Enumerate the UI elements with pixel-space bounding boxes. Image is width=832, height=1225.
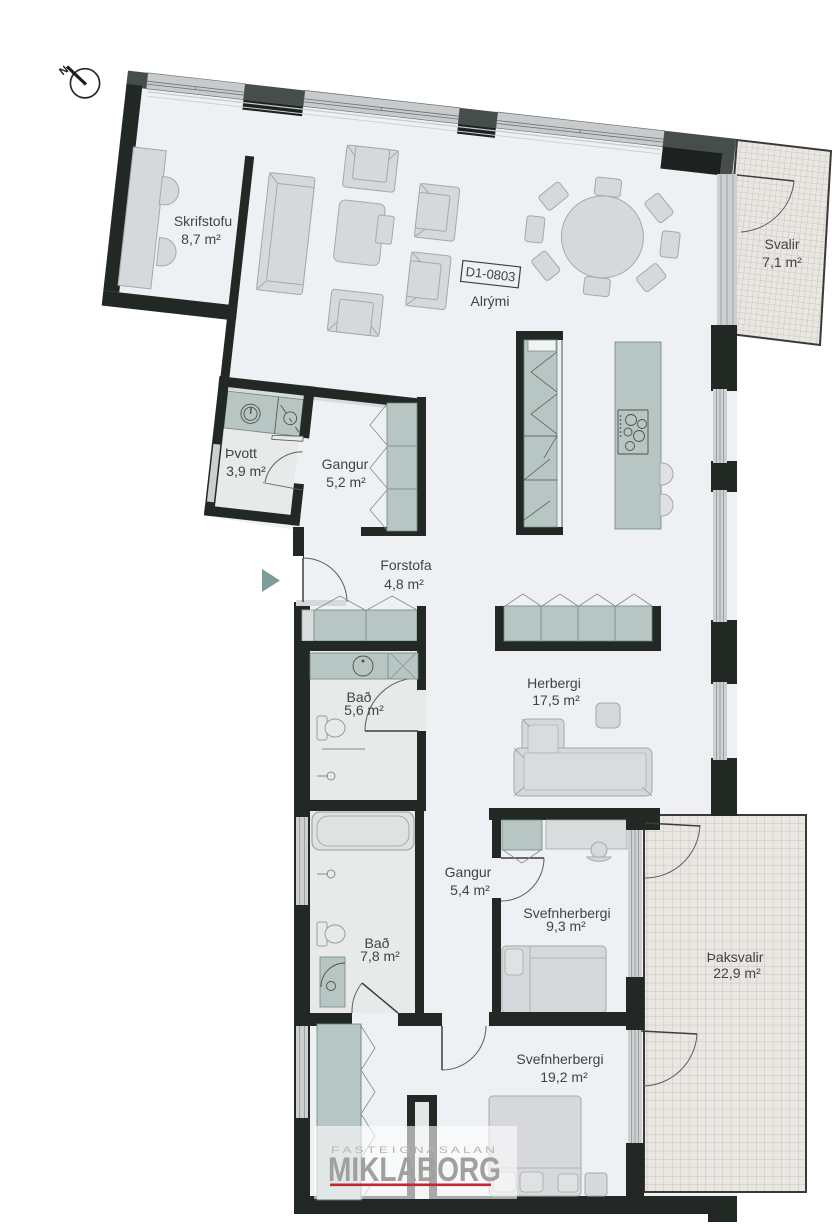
svg-text:Forstofa: Forstofa bbox=[380, 557, 432, 573]
svg-text:17,5 m²: 17,5 m² bbox=[532, 692, 580, 708]
svg-text:Herbergi: Herbergi bbox=[527, 675, 581, 691]
svg-text:5,6 m²: 5,6 m² bbox=[344, 702, 384, 718]
svg-text:Gangur: Gangur bbox=[322, 456, 369, 472]
svg-text:MIKLABORG: MIKLABORG bbox=[328, 1151, 501, 1189]
svg-text:7,8 m²: 7,8 m² bbox=[360, 948, 400, 964]
svg-text:4,8 m²: 4,8 m² bbox=[384, 576, 424, 592]
svg-text:19,2 m²: 19,2 m² bbox=[540, 1069, 588, 1085]
svg-text:Alrými: Alrými bbox=[471, 293, 510, 309]
svg-text:Þvott: Þvott bbox=[225, 445, 257, 461]
svg-text:8,7 m²: 8,7 m² bbox=[181, 231, 221, 247]
svg-text:3,9 m²: 3,9 m² bbox=[226, 463, 266, 479]
svg-text:Skrifstofu: Skrifstofu bbox=[174, 213, 232, 229]
svg-text:Gangur: Gangur bbox=[445, 864, 492, 880]
svg-text:Svefnherbergi: Svefnherbergi bbox=[516, 1051, 603, 1067]
svg-text:7,1 m²: 7,1 m² bbox=[762, 254, 802, 270]
svg-text:22,9 m²: 22,9 m² bbox=[713, 965, 761, 981]
svg-text:9,3 m²: 9,3 m² bbox=[546, 918, 586, 934]
svg-text:5,4 m²: 5,4 m² bbox=[450, 882, 490, 898]
svg-text:5,2 m²: 5,2 m² bbox=[326, 474, 366, 490]
svg-text:Svalir: Svalir bbox=[764, 236, 799, 252]
svg-text:Þaksvalir: Þaksvalir bbox=[707, 949, 764, 965]
